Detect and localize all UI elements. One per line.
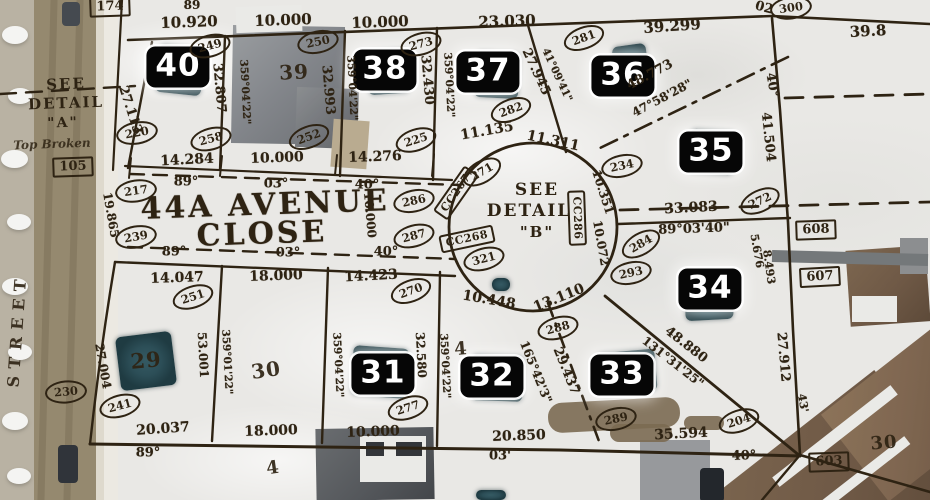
lot-badge-34[interactable]: 34 [678, 269, 741, 310]
dimension-label-03: 03' [489, 449, 511, 464]
dimension-label-32430: 32.430 [417, 55, 436, 106]
dimension-label-27912: 27.912 [773, 332, 792, 383]
dimension-label-89: 89° [162, 245, 187, 260]
dimension-label-10072: 10.072 [590, 219, 612, 267]
lot-badge-32[interactable]: 32 [460, 357, 523, 398]
dimension-label-02: 02 [753, 0, 774, 18]
dimension-label-10000: 10.000 [254, 10, 312, 30]
map-text-b: "B" [520, 223, 554, 241]
map-text-see: SEE [515, 180, 559, 200]
survey-point-oval-289: 289 [593, 403, 639, 434]
dimension-label-43: 43' [795, 393, 811, 414]
dimension-label-20037: 20.037 [136, 419, 191, 439]
dimension-label-40: 40° [762, 72, 781, 99]
monument-box-174: 174 [89, 0, 131, 18]
dimension-label-3590422: 359°04'22" [237, 59, 252, 125]
dimension-label-18000: 18.000 [244, 422, 298, 440]
dimension-label-14047: 14.047 [150, 269, 204, 287]
map-text-street: STREET [4, 272, 31, 388]
dimension-label-32580: 32.580 [413, 332, 429, 379]
map-text-see: SEE [46, 74, 86, 93]
map-text-detail: DETAIL [487, 201, 572, 221]
dimension-label-35594: 35.594 [654, 425, 708, 444]
dimension-label-53001: 53.001 [195, 332, 211, 379]
survey-point-oval-204: 204 [715, 404, 762, 439]
dimension-label-39299: 39.299 [643, 15, 702, 37]
dimension-label-14423: 14.423 [344, 267, 398, 286]
dimension-label-3590422: 359°04'22" [441, 52, 456, 118]
dimension-label-11135: 11.135 [459, 118, 515, 143]
dimension-label-33083: 33.083 [664, 199, 718, 218]
dimension-label-398: 39.8 [849, 21, 886, 41]
lot-badge-33[interactable]: 33 [590, 355, 653, 396]
dimension-label-40: 40° [731, 448, 756, 464]
monument-box-603: 603 [808, 451, 850, 472]
dimension-label-3590122: 359°01'22" [219, 329, 234, 395]
dimension-label-10000: 10.000 [351, 12, 409, 32]
dimension-label-89: 89° [174, 175, 199, 190]
map-text-topbroken: Top Broken [13, 136, 91, 153]
dimension-label-41504: 41.504 [758, 111, 778, 162]
survey-point-oval-250: 250 [295, 26, 341, 57]
dimension-label-11311: 11.311 [525, 128, 581, 155]
dimension-label-3590422: 359°04'22" [437, 333, 452, 399]
dimension-label-10000: 10.000 [250, 149, 304, 167]
survey-point-oval-281: 281 [560, 20, 607, 56]
dimension-label-10000: 10.000 [346, 423, 400, 441]
dimension-label-10448: 10.448 [461, 287, 517, 312]
ground-lot-number-29: 29 [129, 346, 162, 374]
dimension-label-14276: 14.276 [348, 148, 402, 166]
survey-point-oval-288: 288 [535, 311, 582, 344]
dimension-label-20850: 20.850 [492, 427, 546, 445]
dimension-label-40: 40° [374, 245, 399, 260]
survey-annotations: 4038373635343332312492502732813002202582… [0, 0, 930, 500]
ground-lot-number-39: 39 [278, 59, 309, 85]
survey-point-oval-234: 234 [599, 150, 645, 181]
monument-box-105: 105 [52, 156, 94, 177]
dimension-label-23030: 23.030 [478, 11, 536, 31]
survey-point-oval-286: 286 [391, 185, 437, 216]
survey-point-oval-272: 272 [736, 182, 784, 221]
dimension-label-32807: 32.807 [209, 63, 228, 114]
lot-badge-35[interactable]: 35 [679, 132, 742, 173]
monument-box-607: 607 [799, 266, 841, 288]
survey-point-oval-300: 300 [769, 0, 814, 22]
map-text-a: "A" [47, 114, 79, 131]
survey-point-oval-241: 241 [97, 389, 144, 422]
monument-box-608: 608 [795, 219, 837, 240]
lot-badge-31[interactable]: 31 [351, 354, 414, 395]
map-text-close: CLOSE [196, 214, 328, 254]
dimension-label-3590422: 359°04'22" [330, 332, 345, 398]
dimension-label-27004: 27.004 [92, 342, 114, 390]
ground-lot-number-30: 30 [250, 356, 283, 384]
dimension-label-32993: 32.993 [318, 65, 337, 116]
dimension-label-89: 89° [136, 446, 161, 461]
dimension-label-13110: 13.110 [531, 281, 587, 316]
dimension-label-10920: 10.920 [160, 12, 218, 32]
lot-badge-37[interactable]: 37 [456, 52, 519, 93]
ground-lot-number-4: 4 [453, 338, 468, 360]
dimension-label-14284: 14.284 [160, 151, 214, 170]
survey-point-oval-293: 293 [608, 257, 654, 288]
dimension-label-8493: 8.493 [760, 249, 778, 285]
dimension-label-89: 89 [184, 0, 201, 12]
map-text-detail: DETAIL [28, 93, 105, 114]
aerial-plat-map: 4038373635343332312492502732813002202582… [0, 0, 930, 500]
dimension-label-890340: 89°03'40" [658, 220, 730, 237]
curve-label-cc267: CC267 [433, 165, 479, 220]
dimension-label-29437: 29.437 [550, 345, 583, 397]
survey-point-oval-230: 230 [44, 379, 88, 406]
survey-point-oval-277: 277 [384, 391, 431, 426]
dimension-label-18000: 18.000 [249, 267, 303, 285]
ground-lot-number-4: 4 [265, 457, 281, 480]
ground-lot-number-30: 30 [870, 431, 899, 454]
